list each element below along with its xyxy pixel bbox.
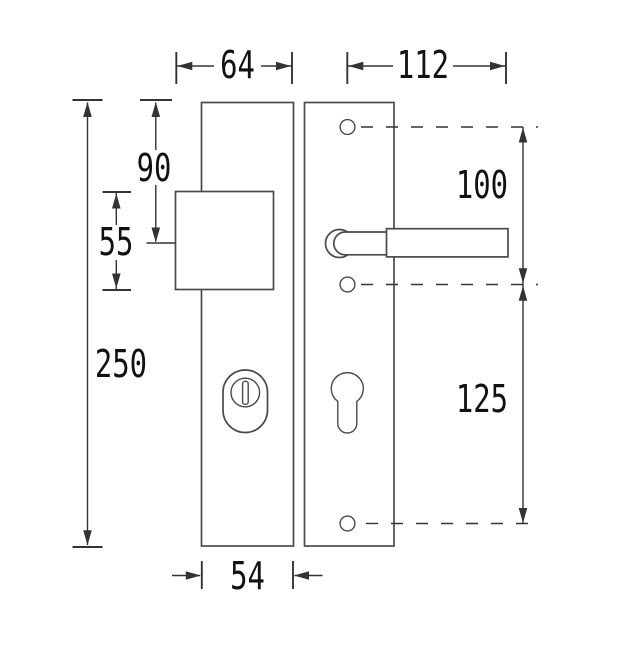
- dimension-label-90: 90: [137, 146, 172, 190]
- arrowhead-left: [294, 571, 309, 580]
- technical-drawing-canvas: 64 112 250 90: [0, 0, 640, 656]
- dimension-knob-center-from-top: 90: [132, 100, 178, 243]
- handle-neck: [334, 232, 388, 255]
- dimension-top-width: 64: [176, 43, 292, 87]
- handle-grip-bar: [387, 229, 509, 257]
- arrowhead-left: [348, 62, 363, 71]
- dimension-label-125: 125: [456, 377, 508, 421]
- right-backplate: [305, 103, 395, 547]
- dimension-drawing-svg: 64 112 250 90: [0, 0, 640, 656]
- arrowhead-right: [186, 571, 201, 580]
- arrowhead-right: [490, 62, 505, 71]
- arrowhead-down: [83, 530, 92, 545]
- dimension-hole-spacings: 100 125: [456, 127, 527, 524]
- arrowhead-up: [112, 194, 121, 209]
- dimension-label-64: 64: [220, 43, 255, 87]
- left-backplate-group: [176, 103, 294, 547]
- arrowhead-down: [152, 228, 161, 243]
- screw-hole-top: [340, 120, 355, 135]
- dimension-knob-height: 55: [94, 192, 139, 290]
- lever-handle: [326, 229, 509, 258]
- dimension-plate-width: 54: [172, 554, 323, 598]
- arrowhead-up: [152, 102, 161, 117]
- screw-hole-middle: [340, 277, 355, 292]
- screw-hole-bottom: [340, 516, 355, 531]
- dimension-label-250: 250: [95, 342, 147, 386]
- arrowhead-up: [83, 102, 92, 117]
- keyway-slot: [243, 381, 249, 404]
- arrowhead-up: [519, 286, 528, 301]
- arrowhead-left: [177, 62, 192, 71]
- arrowhead-up: [519, 128, 528, 143]
- arrowhead-down: [112, 274, 121, 289]
- left-backplate: [202, 103, 294, 547]
- dimension-label-112: 112: [397, 43, 449, 87]
- arrowhead-down: [519, 268, 528, 283]
- arrowhead-down: [519, 508, 528, 523]
- dimension-label-100: 100: [456, 163, 508, 207]
- dimension-label-55: 55: [99, 220, 134, 264]
- dimension-handle-length: 112: [347, 43, 506, 87]
- dimension-label-54: 54: [230, 554, 265, 598]
- square-knob: [176, 192, 274, 290]
- arrowhead-right: [276, 62, 291, 71]
